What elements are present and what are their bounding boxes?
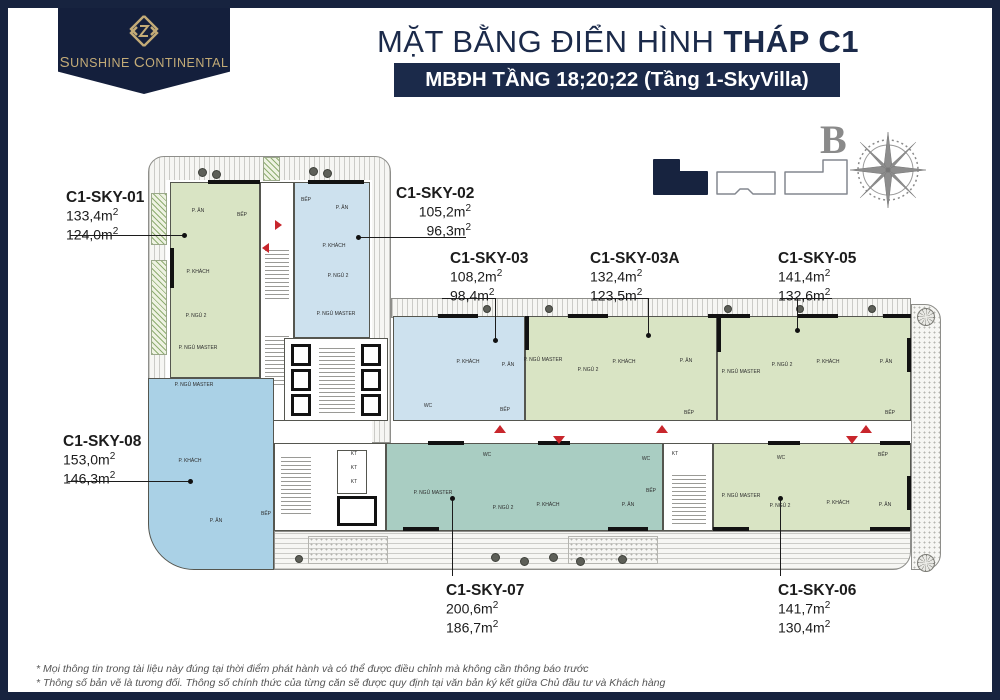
unit-label: C1-SKY-01 133,4m2 124,0m2 [66, 188, 186, 244]
room-label: P. NGỦ MASTER [722, 493, 761, 499]
unit-label: C1-SKY-08 153,0m2 146,3m2 [63, 432, 183, 488]
room-label: P. KHÁCH [537, 502, 560, 508]
room-label: BẾP [885, 410, 895, 416]
wall-segment [438, 314, 478, 318]
unit-id: C1-SKY-03A [590, 249, 710, 268]
room-label: P. KHÁCH [613, 359, 636, 365]
unit-area-net: 130,4m2 [778, 619, 898, 637]
unit-area-gross: 141,7m2 [778, 600, 898, 618]
tree-icon [309, 167, 318, 176]
direction-marker-icon [656, 425, 668, 433]
room-label: P. NGỦ 2 [328, 273, 349, 279]
tree-fan-icon [917, 554, 935, 572]
room-label: P. ĂN [879, 502, 891, 508]
room-label: WC [424, 403, 432, 409]
room-label: P. NGỦ 2 [578, 367, 599, 373]
room-label: P. NGỦ 2 [493, 505, 514, 511]
unit-area-gross: 105,2m2 [396, 203, 471, 221]
wall-segment [308, 180, 364, 184]
room-label: WC [777, 455, 785, 461]
unit-area-net: 186,7m2 [446, 619, 566, 637]
room-label: P. NGỦ 2 [186, 313, 207, 319]
room-label: P. NGỦ MASTER [179, 345, 218, 351]
unit-label: C1-SKY-03 108,2m2 98,4m2 [450, 249, 570, 305]
room-label: P. KHÁCH [179, 458, 202, 464]
wall-segment [525, 316, 529, 350]
direction-marker-icon [846, 436, 858, 444]
unit-label: C1-SKY-07 200,6m2 186,7m2 [446, 581, 566, 637]
unit-area-gross: 153,0m2 [63, 451, 183, 469]
logo-monogram-icon [58, 14, 230, 53]
unit-c1-sky-07-area [386, 443, 663, 531]
room-label: BẾP [878, 452, 888, 458]
room-label: P. NGỦ MASTER [722, 369, 761, 375]
room-label: P. NGỦ MASTER [414, 490, 453, 496]
unit-area-net: 132,6m2 [778, 287, 898, 305]
wall-segment [907, 338, 911, 372]
wall-segment [768, 441, 800, 445]
unit-c1-sky-03-area [393, 316, 525, 421]
room-label: P. ĂN [502, 362, 514, 368]
leader-dot [450, 496, 455, 501]
unit-area-gross: 133,4m2 [66, 207, 186, 225]
direction-marker-icon [494, 425, 506, 433]
leader-dot [646, 333, 651, 338]
leader-dot [493, 338, 498, 343]
room-label: BẾP [646, 488, 656, 494]
unit-area-net: 123,5m2 [590, 287, 710, 305]
wall-segment [608, 527, 648, 531]
unit-label: C1-SKY-06 141,7m2 130,4m2 [778, 581, 898, 637]
wall-segment [907, 476, 911, 510]
wall-segment [798, 314, 838, 318]
room-label: WC [642, 456, 650, 462]
planter [308, 536, 388, 564]
unit-id: C1-SKY-06 [778, 581, 898, 600]
stair-core-bottom-right [663, 443, 713, 531]
tree-icon [724, 305, 732, 313]
elevator-core-left-wing [284, 338, 388, 421]
wall-segment [870, 527, 910, 531]
room-label: P. ĂN [680, 358, 692, 364]
room-label: BẾP [261, 511, 271, 517]
tree-fan-icon [917, 308, 935, 326]
unit-c1-sky-03a-area [525, 316, 717, 421]
wall-segment [170, 248, 174, 288]
stair-core-bottom-left [274, 443, 386, 531]
logo-wordmark: SUNSHINE CONTINENTAL [58, 54, 230, 71]
wall-segment [717, 316, 721, 352]
wall-segment [708, 314, 750, 318]
unit-area-net: 98,4m2 [450, 287, 570, 305]
tree-icon [198, 168, 207, 177]
unit-id: C1-SKY-02 [396, 184, 471, 203]
room-label: P. NGỦ 2 [772, 362, 793, 368]
tree-icon [295, 555, 303, 563]
tree-icon [868, 305, 876, 313]
direction-marker-icon [553, 436, 565, 444]
room-label: KT [672, 451, 678, 457]
leader-line [452, 498, 453, 576]
unit-area-gross: 141,4m2 [778, 268, 898, 286]
leader-dot [188, 479, 193, 484]
unit-id: C1-SKY-03 [450, 249, 570, 268]
tree-icon [520, 557, 529, 566]
note-line: * Mọi thông tin trong tài liệu này đúng … [36, 662, 665, 676]
compass-north-label: B [820, 116, 847, 163]
leader-dot [778, 496, 783, 501]
room-label: BẾP [684, 410, 694, 416]
room-label: P. NGỦ MASTER [524, 357, 563, 363]
wall-segment [883, 314, 911, 318]
right-terrace [911, 304, 941, 570]
room-label: P. NGỦ MASTER [317, 311, 356, 317]
room-label: KT [351, 451, 357, 457]
tree-icon [576, 557, 585, 566]
key-plan-tower-c1 [654, 160, 707, 194]
tree-icon [212, 170, 221, 179]
room-label: P. NGỦ 2 [770, 503, 791, 509]
wall-segment [208, 180, 260, 184]
room-label: P. ĂN [210, 518, 222, 524]
room-label: P. KHÁCH [827, 500, 850, 506]
planter [151, 260, 167, 355]
direction-marker-icon [860, 425, 872, 433]
sunshine-continental-logo: SUNSHINE CONTINENTAL [58, 8, 230, 94]
room-label: KT [351, 479, 357, 485]
room-label: BẾP [500, 407, 510, 413]
tree-icon [323, 169, 332, 178]
room-label: KT [351, 465, 357, 471]
unit-id: C1-SKY-05 [778, 249, 898, 268]
room-label: P. KHÁCH [457, 359, 480, 365]
floorplan-page: SUNSHINE CONTINENTAL MẶT BẰNG ĐIỂN HÌNH … [0, 0, 1000, 700]
wall-segment [403, 527, 439, 531]
room-label: P. KHÁCH [187, 269, 210, 275]
room-label: P. ĂN [622, 502, 634, 508]
unit-label: C1-SKY-02 105,2m2 96,3m2 [396, 184, 471, 240]
unit-area-net: 124,0m2 [66, 226, 186, 244]
direction-marker-icon [262, 243, 269, 253]
room-label: P. NGỦ MASTER [175, 382, 214, 388]
tree-icon [549, 553, 558, 562]
room-label: P. ĂN [192, 208, 204, 214]
room-label: BẾP [301, 197, 311, 203]
tree-icon [483, 305, 491, 313]
unit-area-gross: 132,4m2 [590, 268, 710, 286]
leader-dot [795, 328, 800, 333]
unit-label: C1-SKY-05 141,4m2 132,6m2 [778, 249, 898, 305]
wall-segment [880, 441, 910, 445]
footer-notes: * Mọi thông tin trong tài liệu này đúng … [36, 662, 665, 690]
page-title: MẶT BẰNG ĐIỂN HÌNH THÁP C1 [308, 24, 928, 60]
unit-area-net: 146,3m2 [63, 470, 183, 488]
room-label: P. ĂN [880, 359, 892, 365]
room-label: WC [483, 452, 491, 458]
room-label: BẾP [237, 212, 247, 218]
unit-id: C1-SKY-08 [63, 432, 183, 451]
room-label: P. KHÁCH [817, 359, 840, 365]
page-subtitle: MBĐH TẦNG 18;20;22 (Tầng 1-SkyVilla) [394, 63, 840, 97]
note-line: * Thông số bản vẽ là tương đối. Thông số… [36, 676, 665, 690]
unit-area-net: 96,3m2 [396, 222, 471, 240]
unit-id: C1-SKY-01 [66, 188, 186, 207]
unit-id: C1-SKY-07 [446, 581, 566, 600]
tree-icon [491, 553, 500, 562]
wall-segment [713, 527, 749, 531]
unit-label: C1-SKY-03A 132,4m2 123,5m2 [590, 249, 710, 305]
tree-icon [618, 555, 627, 564]
compass-rose-icon [846, 128, 930, 217]
tree-icon [545, 305, 553, 313]
unit-area-gross: 200,6m2 [446, 600, 566, 618]
room-label: P. KHÁCH [323, 243, 346, 249]
leader-line [780, 498, 781, 576]
wall-segment [568, 314, 608, 318]
planter [263, 157, 280, 181]
unit-area-gross: 108,2m2 [450, 268, 570, 286]
leader-dot [356, 235, 361, 240]
room-label: P. ĂN [336, 205, 348, 211]
direction-marker-icon [275, 220, 282, 230]
wall-segment [428, 441, 464, 445]
